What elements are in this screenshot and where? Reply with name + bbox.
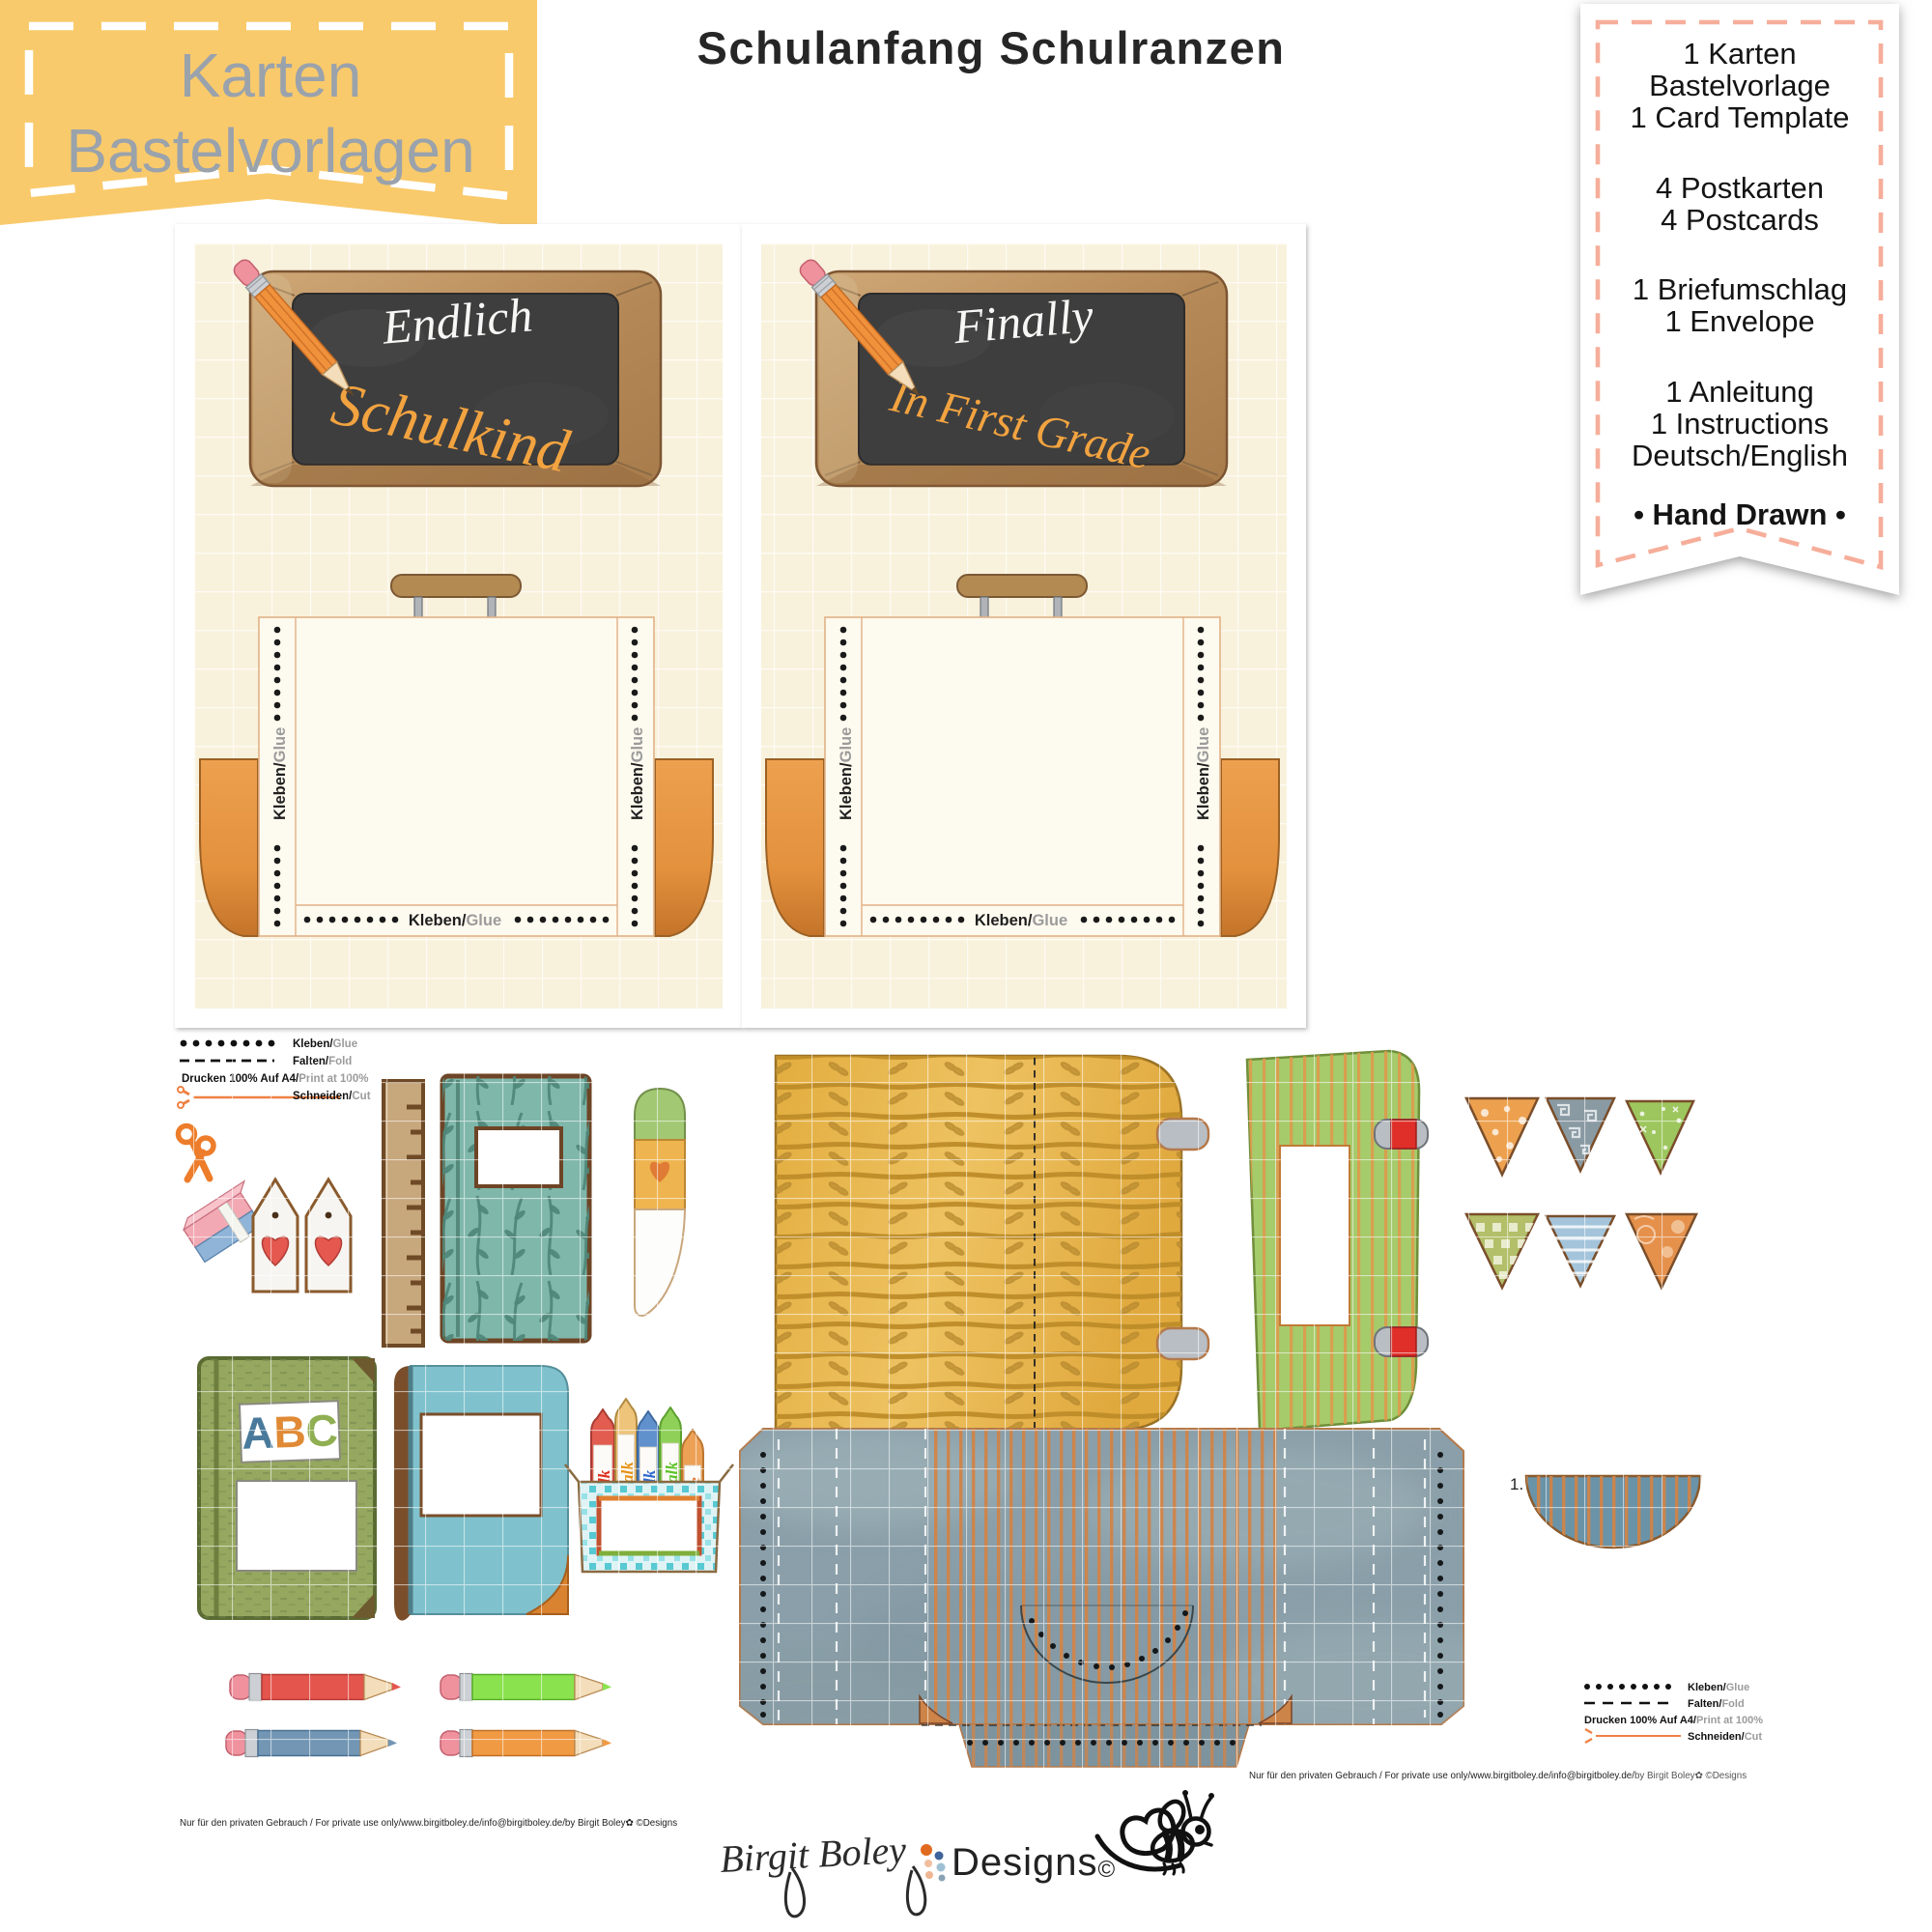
svg-text:Karten: Karten — [180, 41, 362, 110]
svg-text:Drucken 100% Auf A4/Print at 1: Drucken 100% Auf A4/Print at 100% — [1584, 1715, 1763, 1726]
svg-text:1 Briefumschlag: 1 Briefumschlag — [1633, 272, 1847, 306]
svg-text:Kleben/Glue: Kleben/Glue — [409, 912, 501, 929]
svg-text:1 Anleitung: 1 Anleitung — [1665, 375, 1813, 409]
svg-text:Kleben/Glue: Kleben/Glue — [1688, 1682, 1749, 1693]
svg-text:Kleben/Glue: Kleben/Glue — [293, 1038, 357, 1050]
svg-text:1 Envelope: 1 Envelope — [1664, 304, 1814, 338]
svg-text:Kleben/Glue: Kleben/Glue — [1195, 727, 1212, 820]
svg-text:4 Postkarten: 4 Postkarten — [1656, 171, 1824, 205]
svg-text:Bastelvorlage: Bastelvorlage — [1649, 69, 1831, 102]
svg-text:Kleben/Glue: Kleben/Glue — [975, 912, 1067, 929]
svg-text:1 Card Template: 1 Card Template — [1631, 100, 1850, 134]
svg-text:Deutsch/English: Deutsch/English — [1632, 439, 1848, 472]
svg-text:1 Instructions: 1 Instructions — [1651, 407, 1829, 440]
svg-text:Designs©: Designs© — [952, 1841, 1116, 1884]
svg-text:4 Postcards: 4 Postcards — [1661, 203, 1819, 237]
svg-text:Falten/Fold: Falten/Fold — [1688, 1698, 1745, 1710]
svg-text:Schneiden/Cut: Schneiden/Cut — [1688, 1731, 1762, 1743]
svg-text:Nur für den privaten Gebrauch: Nur für den privaten Gebrauch / For priv… — [180, 1818, 677, 1829]
svg-text:• Hand Drawn •: • Hand Drawn • — [1634, 497, 1846, 531]
svg-text:Kleben/Glue: Kleben/Glue — [271, 727, 289, 820]
svg-text:Bastelvorlagen: Bastelvorlagen — [66, 116, 474, 185]
svg-text:Nur für den privaten Gebrauch: Nur für den privaten Gebrauch / For priv… — [1249, 1771, 1747, 1781]
svg-text:Schulanfang Schulranzen: Schulanfang Schulranzen — [696, 22, 1285, 73]
svg-text:Kleben/Glue: Kleben/Glue — [838, 727, 855, 820]
svg-text:1 Karten: 1 Karten — [1683, 37, 1796, 71]
svg-text:Kleben/Glue: Kleben/Glue — [629, 727, 646, 820]
